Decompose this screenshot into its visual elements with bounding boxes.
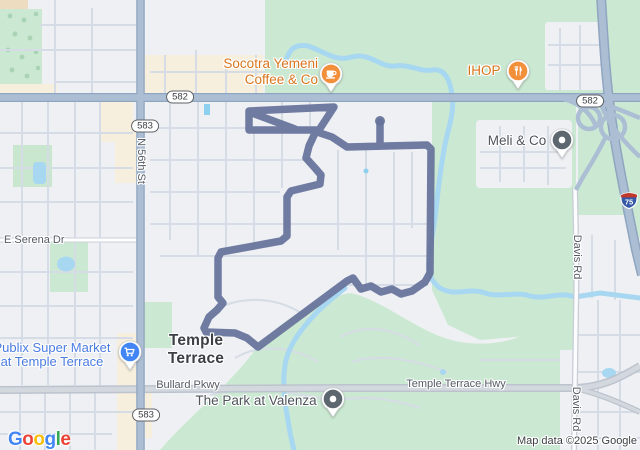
park-square [13, 145, 52, 187]
google-logo-letter: o [33, 429, 44, 450]
shield-583-south: 583 [132, 409, 160, 422]
road-label-tt-hwy: Temple Terrace Hwy [406, 378, 505, 390]
generic-pin-icon-valenza[interactable] [320, 387, 346, 418]
poi-label-publix[interactable]: Publix Super Market at Temple Terrace [0, 341, 118, 369]
map-canvas[interactable]: N 56th St E Serena Dr Bullard Pkwy Templ… [0, 0, 640, 450]
shield-582-east: 582 [576, 95, 604, 108]
road-label-n56th: N 56th St [135, 138, 147, 184]
shield-583-north: 583 [131, 120, 159, 133]
road-label-serena: E Serena Dr [4, 234, 65, 246]
google-logo-letter: o [22, 429, 33, 450]
interstate-75-shield: 75 [619, 191, 639, 210]
i75-number: 75 [625, 198, 633, 207]
restaurant-pin-icon[interactable] [505, 59, 531, 90]
road-label-davis-2: Davis Rd [570, 387, 582, 432]
generic-pin-icon-meli[interactable] [549, 128, 575, 159]
route-spur-end [375, 116, 385, 126]
google-logo-letter: e [60, 429, 70, 450]
google-logo-letter: G [8, 429, 22, 450]
poi-label-socotra[interactable]: Socotra Yemeni Coffee & Co [223, 56, 318, 88]
google-logo-letter: g [45, 429, 56, 450]
road-label-davis-1: Davis Rd [571, 235, 583, 280]
google-logo[interactable]: Google [8, 429, 70, 450]
city-label-temple-terrace: Temple Terrace [168, 332, 224, 368]
poi-label-ihop[interactable]: IHOP [467, 63, 500, 79]
coffee-pin-icon[interactable] [318, 62, 344, 93]
shield-582-west: 582 [166, 91, 194, 104]
map-attribution: Map data ©2025 Google [517, 435, 637, 447]
shopping-pin-icon[interactable] [117, 340, 143, 371]
road-label-bullard: Bullard Pkwy [156, 379, 220, 391]
poi-label-valenza[interactable]: The Park at Valenza [195, 393, 316, 408]
commercial-tan [0, 0, 28, 9]
poi-label-meli[interactable]: Meli & Co [488, 133, 547, 148]
